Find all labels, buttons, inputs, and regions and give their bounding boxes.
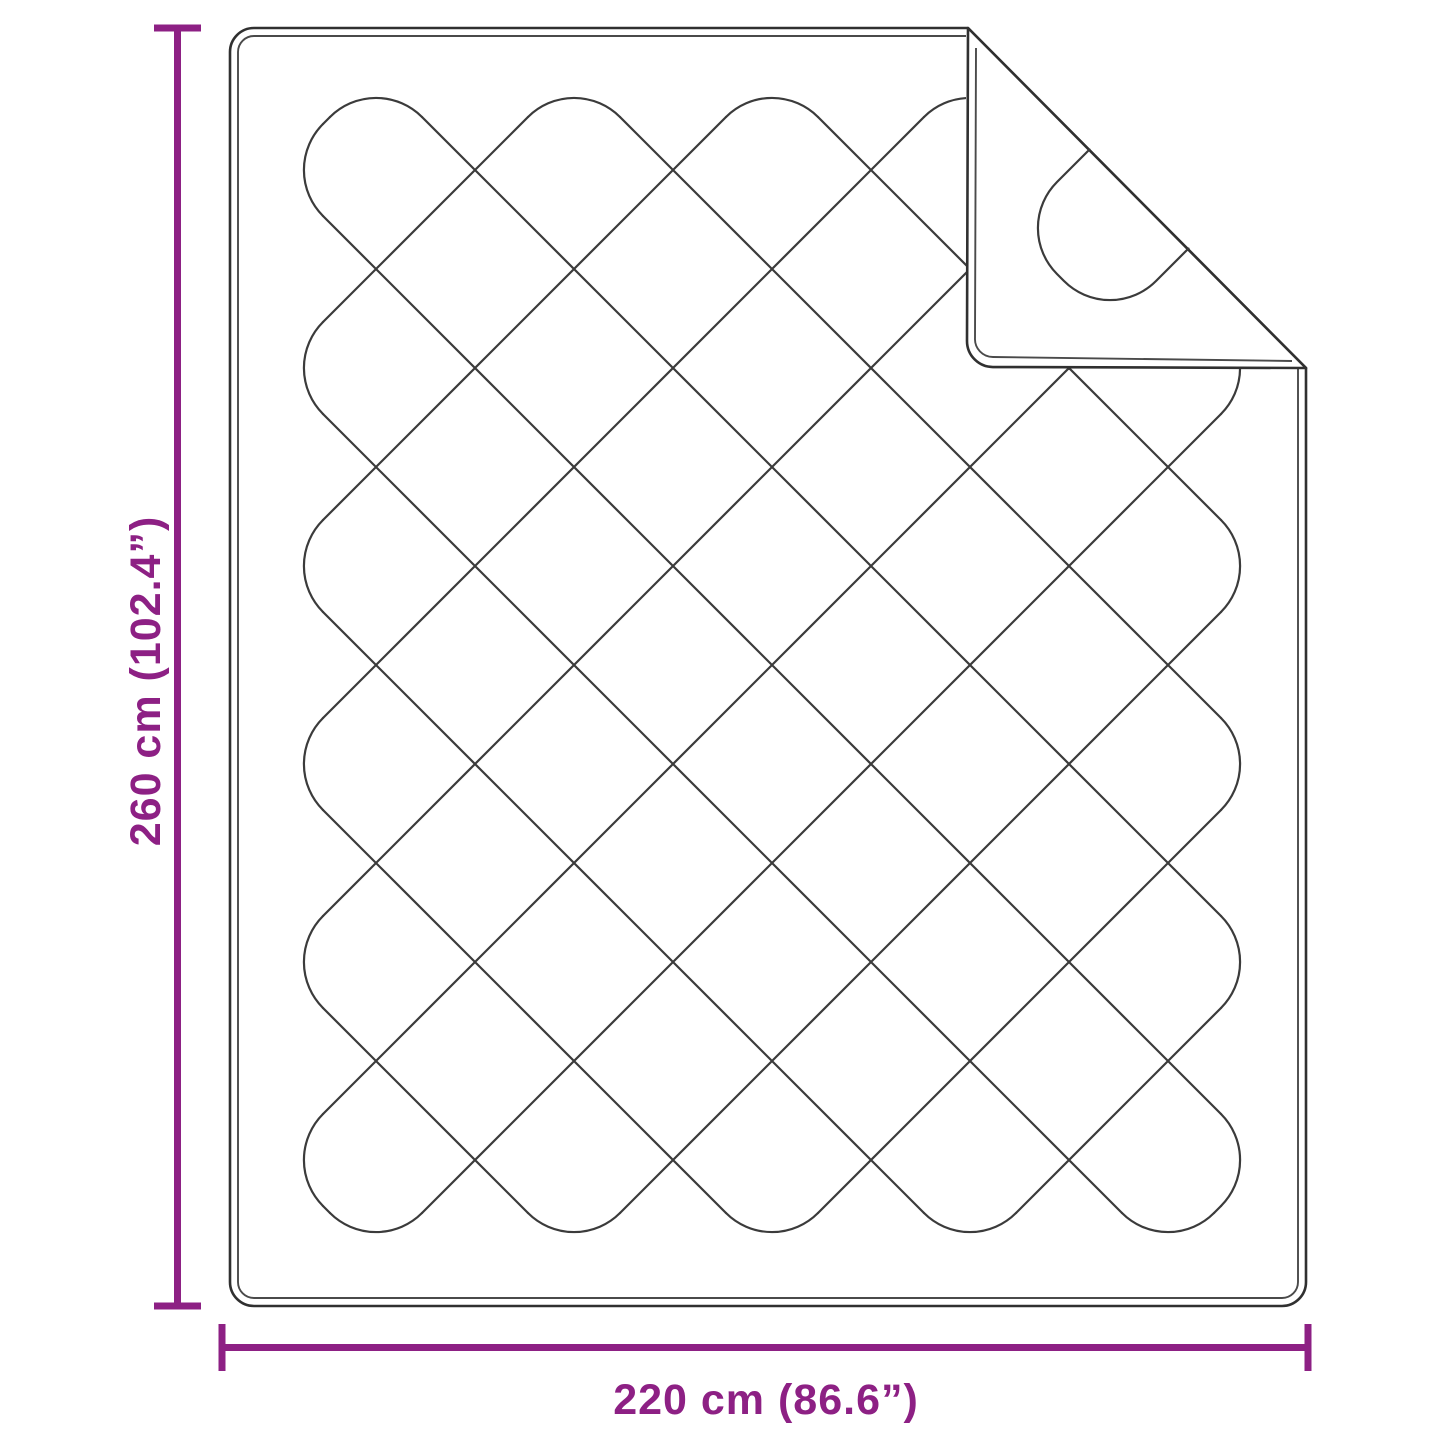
diagram-canvas: 260 cm (102.4”) 220 cm (86.6”) xyxy=(0,0,1445,1445)
folded-corner-flap xyxy=(967,28,1306,368)
vertical-dimension: 260 cm (102.4”) xyxy=(122,28,201,1306)
product-dimension-diagram: 260 cm (102.4”) 220 cm (86.6”) xyxy=(0,0,1445,1445)
horizontal-dimension: 220 cm (86.6”) xyxy=(222,1324,1308,1424)
width-dimension-label: 220 cm (86.6”) xyxy=(613,1376,919,1424)
height-dimension-label: 260 cm (102.4”) xyxy=(122,516,170,847)
